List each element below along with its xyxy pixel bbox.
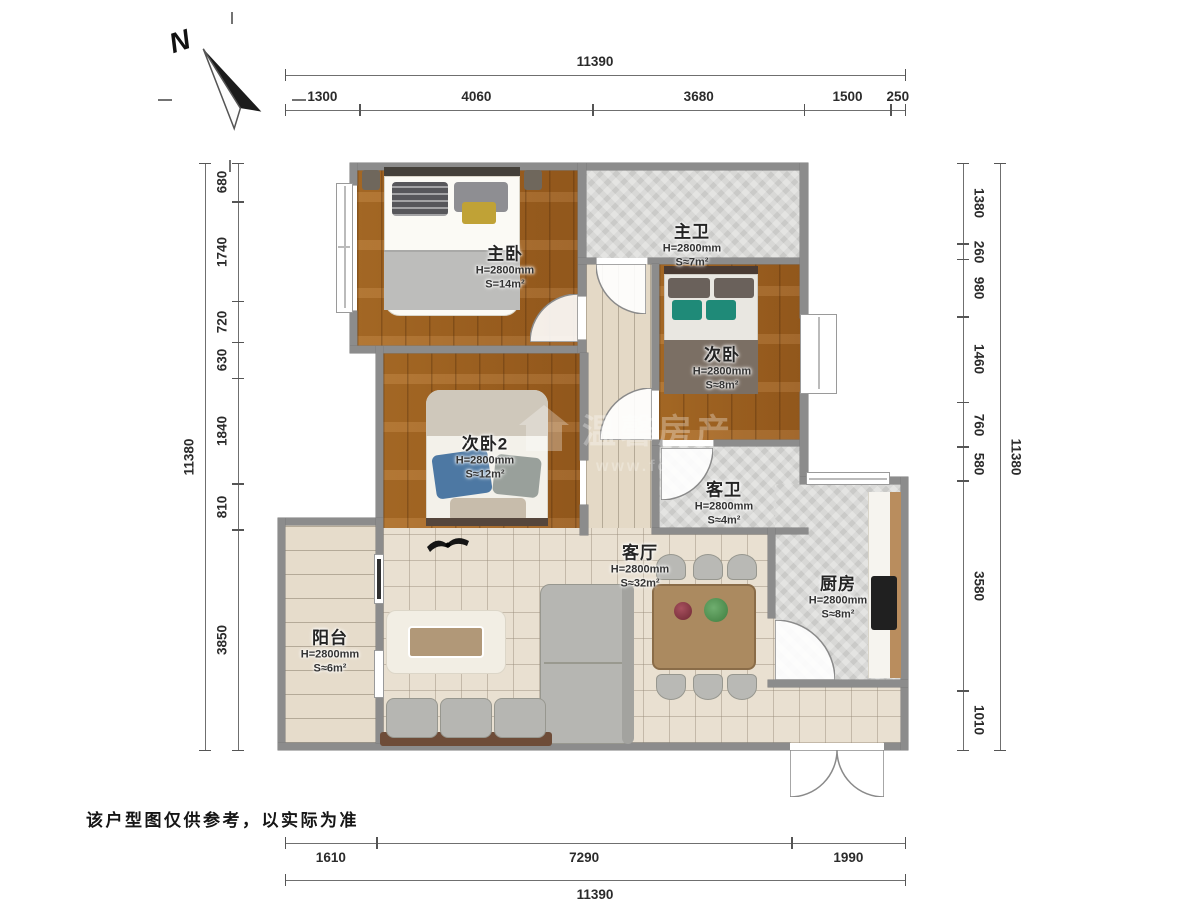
blanket <box>426 390 548 436</box>
dim-tick <box>957 690 969 692</box>
dim-tick <box>285 69 287 81</box>
dim-label: 720 <box>215 311 230 334</box>
dim-tick <box>957 243 969 245</box>
bed-headboard <box>426 518 548 526</box>
room-height: H=2800mm <box>693 366 751 380</box>
dim-label: 1010 <box>972 705 987 735</box>
dim-tick <box>957 316 969 318</box>
wall <box>714 440 808 446</box>
room-label-bedroom-2: 次卧H=2800mmS≈8m² <box>693 345 751 394</box>
pillow <box>462 202 496 224</box>
dim-tick <box>232 163 244 165</box>
dim-label: 11380 <box>1009 438 1024 475</box>
room-area: S≈12m² <box>456 469 514 483</box>
door-kitchen-icon <box>775 620 835 680</box>
room-area: S≈7m² <box>663 257 721 271</box>
sofa-armrest <box>622 584 634 744</box>
dim-label: 260 <box>972 240 987 263</box>
room-name: 厨房 <box>809 574 867 595</box>
dim-label: 760 <box>972 413 987 436</box>
wall <box>278 518 383 525</box>
dim-line <box>238 163 239 750</box>
sofa-cushion <box>494 698 546 738</box>
dim-label: 1990 <box>833 850 863 865</box>
wall <box>578 258 596 264</box>
ceiling-fan-icon <box>425 532 471 556</box>
dim-tick <box>905 874 907 886</box>
dim-tick <box>957 163 969 165</box>
wall <box>578 163 586 296</box>
dim-tick <box>285 874 287 886</box>
room-name: 客卫 <box>695 480 753 501</box>
dim-label: 4060 <box>461 89 491 104</box>
dim-label: 1460 <box>972 344 987 374</box>
dim-tick <box>199 750 211 752</box>
dim-tick <box>994 750 1006 752</box>
pillow <box>706 300 736 320</box>
room-name: 主卫 <box>663 222 721 243</box>
entry-door-right-icon <box>837 750 884 797</box>
dim-label: 250 <box>887 89 910 104</box>
window <box>374 650 384 698</box>
room-name: 次卧2 <box>456 434 514 455</box>
dim-line <box>285 110 905 111</box>
coffee-table <box>408 626 484 658</box>
watermark-url: www.fc <box>596 458 669 476</box>
room-label-master-bedroom: 主卧H=2800mmS=14m² <box>476 244 534 293</box>
dim-line <box>205 163 206 750</box>
dim-tick <box>957 480 969 482</box>
room-area: S≈8m² <box>809 609 867 623</box>
dim-tick <box>376 837 378 849</box>
door-master-bedroom-icon <box>530 294 578 342</box>
room-height: H=2800mm <box>476 265 534 279</box>
dim-label: 1840 <box>215 416 230 446</box>
dim-tick <box>232 342 244 344</box>
dim-label: 11390 <box>577 54 614 69</box>
dim-line <box>963 163 964 750</box>
plant-decor <box>704 598 728 622</box>
sofa-cushion <box>440 698 492 738</box>
dim-label: 1500 <box>833 89 863 104</box>
dim-label: 1300 <box>307 89 337 104</box>
sofa-cushion <box>386 698 438 738</box>
dim-tick <box>232 529 244 531</box>
dim-tick <box>957 446 969 448</box>
dim-line <box>285 843 905 844</box>
room-area: S=14m² <box>476 279 534 293</box>
room-label-guest-bath: 客卫H=2800mmS≈4m² <box>695 480 753 529</box>
window <box>336 183 353 313</box>
dim-label: 680 <box>215 171 230 194</box>
tv-on-divider <box>377 559 381 599</box>
wall <box>768 680 908 687</box>
room-name: 阳台 <box>301 628 359 649</box>
wall <box>652 528 808 534</box>
dim-label: 11380 <box>182 438 197 475</box>
dim-tick <box>905 104 907 116</box>
dining-table <box>652 584 756 670</box>
window <box>806 472 890 485</box>
fruit-bowl <box>674 602 692 620</box>
dining-chair <box>693 554 723 580</box>
north-arrow: N <box>152 8 312 178</box>
dim-label: 1740 <box>215 237 230 267</box>
room-label-kitchen: 厨房H=2800mmS≈8m² <box>809 574 867 623</box>
entry-door-left-icon <box>790 750 837 797</box>
dim-label: 630 <box>215 349 230 372</box>
room-label-balcony: 阳台H=2800mmS≈6m² <box>301 628 359 677</box>
room-area: S≈6m² <box>301 663 359 677</box>
wall <box>350 163 357 185</box>
dining-chair <box>727 554 757 580</box>
room-height: H=2800mm <box>663 243 721 257</box>
dim-tick <box>285 104 287 116</box>
dim-label: 3850 <box>215 625 230 655</box>
wall <box>901 477 908 750</box>
wall <box>580 353 588 460</box>
room-height: H=2800mm <box>301 649 359 663</box>
dim-line <box>285 880 905 881</box>
room-height: H=2800mm <box>611 564 669 578</box>
dim-tick <box>232 750 244 752</box>
dim-tick <box>957 402 969 404</box>
entry-opening <box>790 743 884 750</box>
nightstand <box>524 170 542 190</box>
dim-tick <box>232 378 244 380</box>
dim-line <box>1000 163 1001 750</box>
dim-tick <box>994 163 1006 165</box>
dim-tick <box>285 837 287 849</box>
dining-chair <box>656 674 686 700</box>
sofa-chaise-split <box>544 662 628 664</box>
dining-chair <box>727 674 757 700</box>
wall <box>578 340 586 353</box>
wall <box>768 528 775 618</box>
disclaimer-text: 该户型图仅供参考，以实际为准 <box>86 806 359 831</box>
wall <box>800 392 808 480</box>
room-label-living-room: 客厅H=2800mmS≈32m² <box>611 543 669 592</box>
wall <box>376 346 383 528</box>
wall <box>350 346 586 353</box>
pillow <box>668 278 710 298</box>
dim-tick <box>232 301 244 303</box>
dim-tick <box>232 201 244 203</box>
dim-tick <box>199 163 211 165</box>
dim-label: 580 <box>972 453 987 476</box>
room-area: S≈32m² <box>611 578 669 592</box>
room-label-bedroom-3: 次卧2H=2800mmS≈12m² <box>456 434 514 483</box>
north-label: N <box>165 23 195 59</box>
room-area: S≈4m² <box>695 515 753 529</box>
pillow <box>672 300 702 320</box>
dim-tick <box>232 483 244 485</box>
wall <box>580 505 588 535</box>
room-label-master-bath: 主卫H=2800mmS≈7m² <box>663 222 721 271</box>
wall <box>278 518 285 750</box>
dim-tick <box>905 69 907 81</box>
dim-label: 3680 <box>684 89 714 104</box>
dim-label: 980 <box>972 277 987 300</box>
dim-label: 1380 <box>972 188 987 218</box>
dim-tick <box>359 104 361 116</box>
dining-chair <box>693 674 723 700</box>
dim-line <box>285 75 905 76</box>
room-name: 次卧 <box>693 345 751 366</box>
dim-tick <box>905 837 907 849</box>
pillow <box>392 182 448 216</box>
dim-tick <box>957 750 969 752</box>
nightstand <box>362 170 380 190</box>
room-height: H=2800mm <box>456 455 514 469</box>
wall <box>652 264 659 390</box>
dim-tick <box>791 837 793 849</box>
room-area: S≈8m² <box>693 380 751 394</box>
door-bedroom-2-icon <box>600 388 652 440</box>
dim-label: 3580 <box>972 571 987 601</box>
dim-label: 1610 <box>316 850 346 865</box>
pillow <box>714 278 754 298</box>
dim-tick <box>592 104 594 116</box>
wall <box>800 163 808 318</box>
cooktop <box>871 576 897 630</box>
window <box>800 314 837 394</box>
room-height: H=2800mm <box>809 595 867 609</box>
dim-tick <box>804 104 806 116</box>
dim-label: 7290 <box>569 850 599 865</box>
dim-tick <box>890 104 892 116</box>
room-height: H=2800mm <box>695 501 753 515</box>
dim-label: 810 <box>215 496 230 519</box>
sofa-chaise <box>540 584 632 744</box>
door-master-bath-icon <box>596 264 646 314</box>
room-name: 客厅 <box>611 543 669 564</box>
wall <box>376 518 383 743</box>
dim-tick <box>957 259 969 261</box>
room-name: 主卧 <box>476 244 534 265</box>
